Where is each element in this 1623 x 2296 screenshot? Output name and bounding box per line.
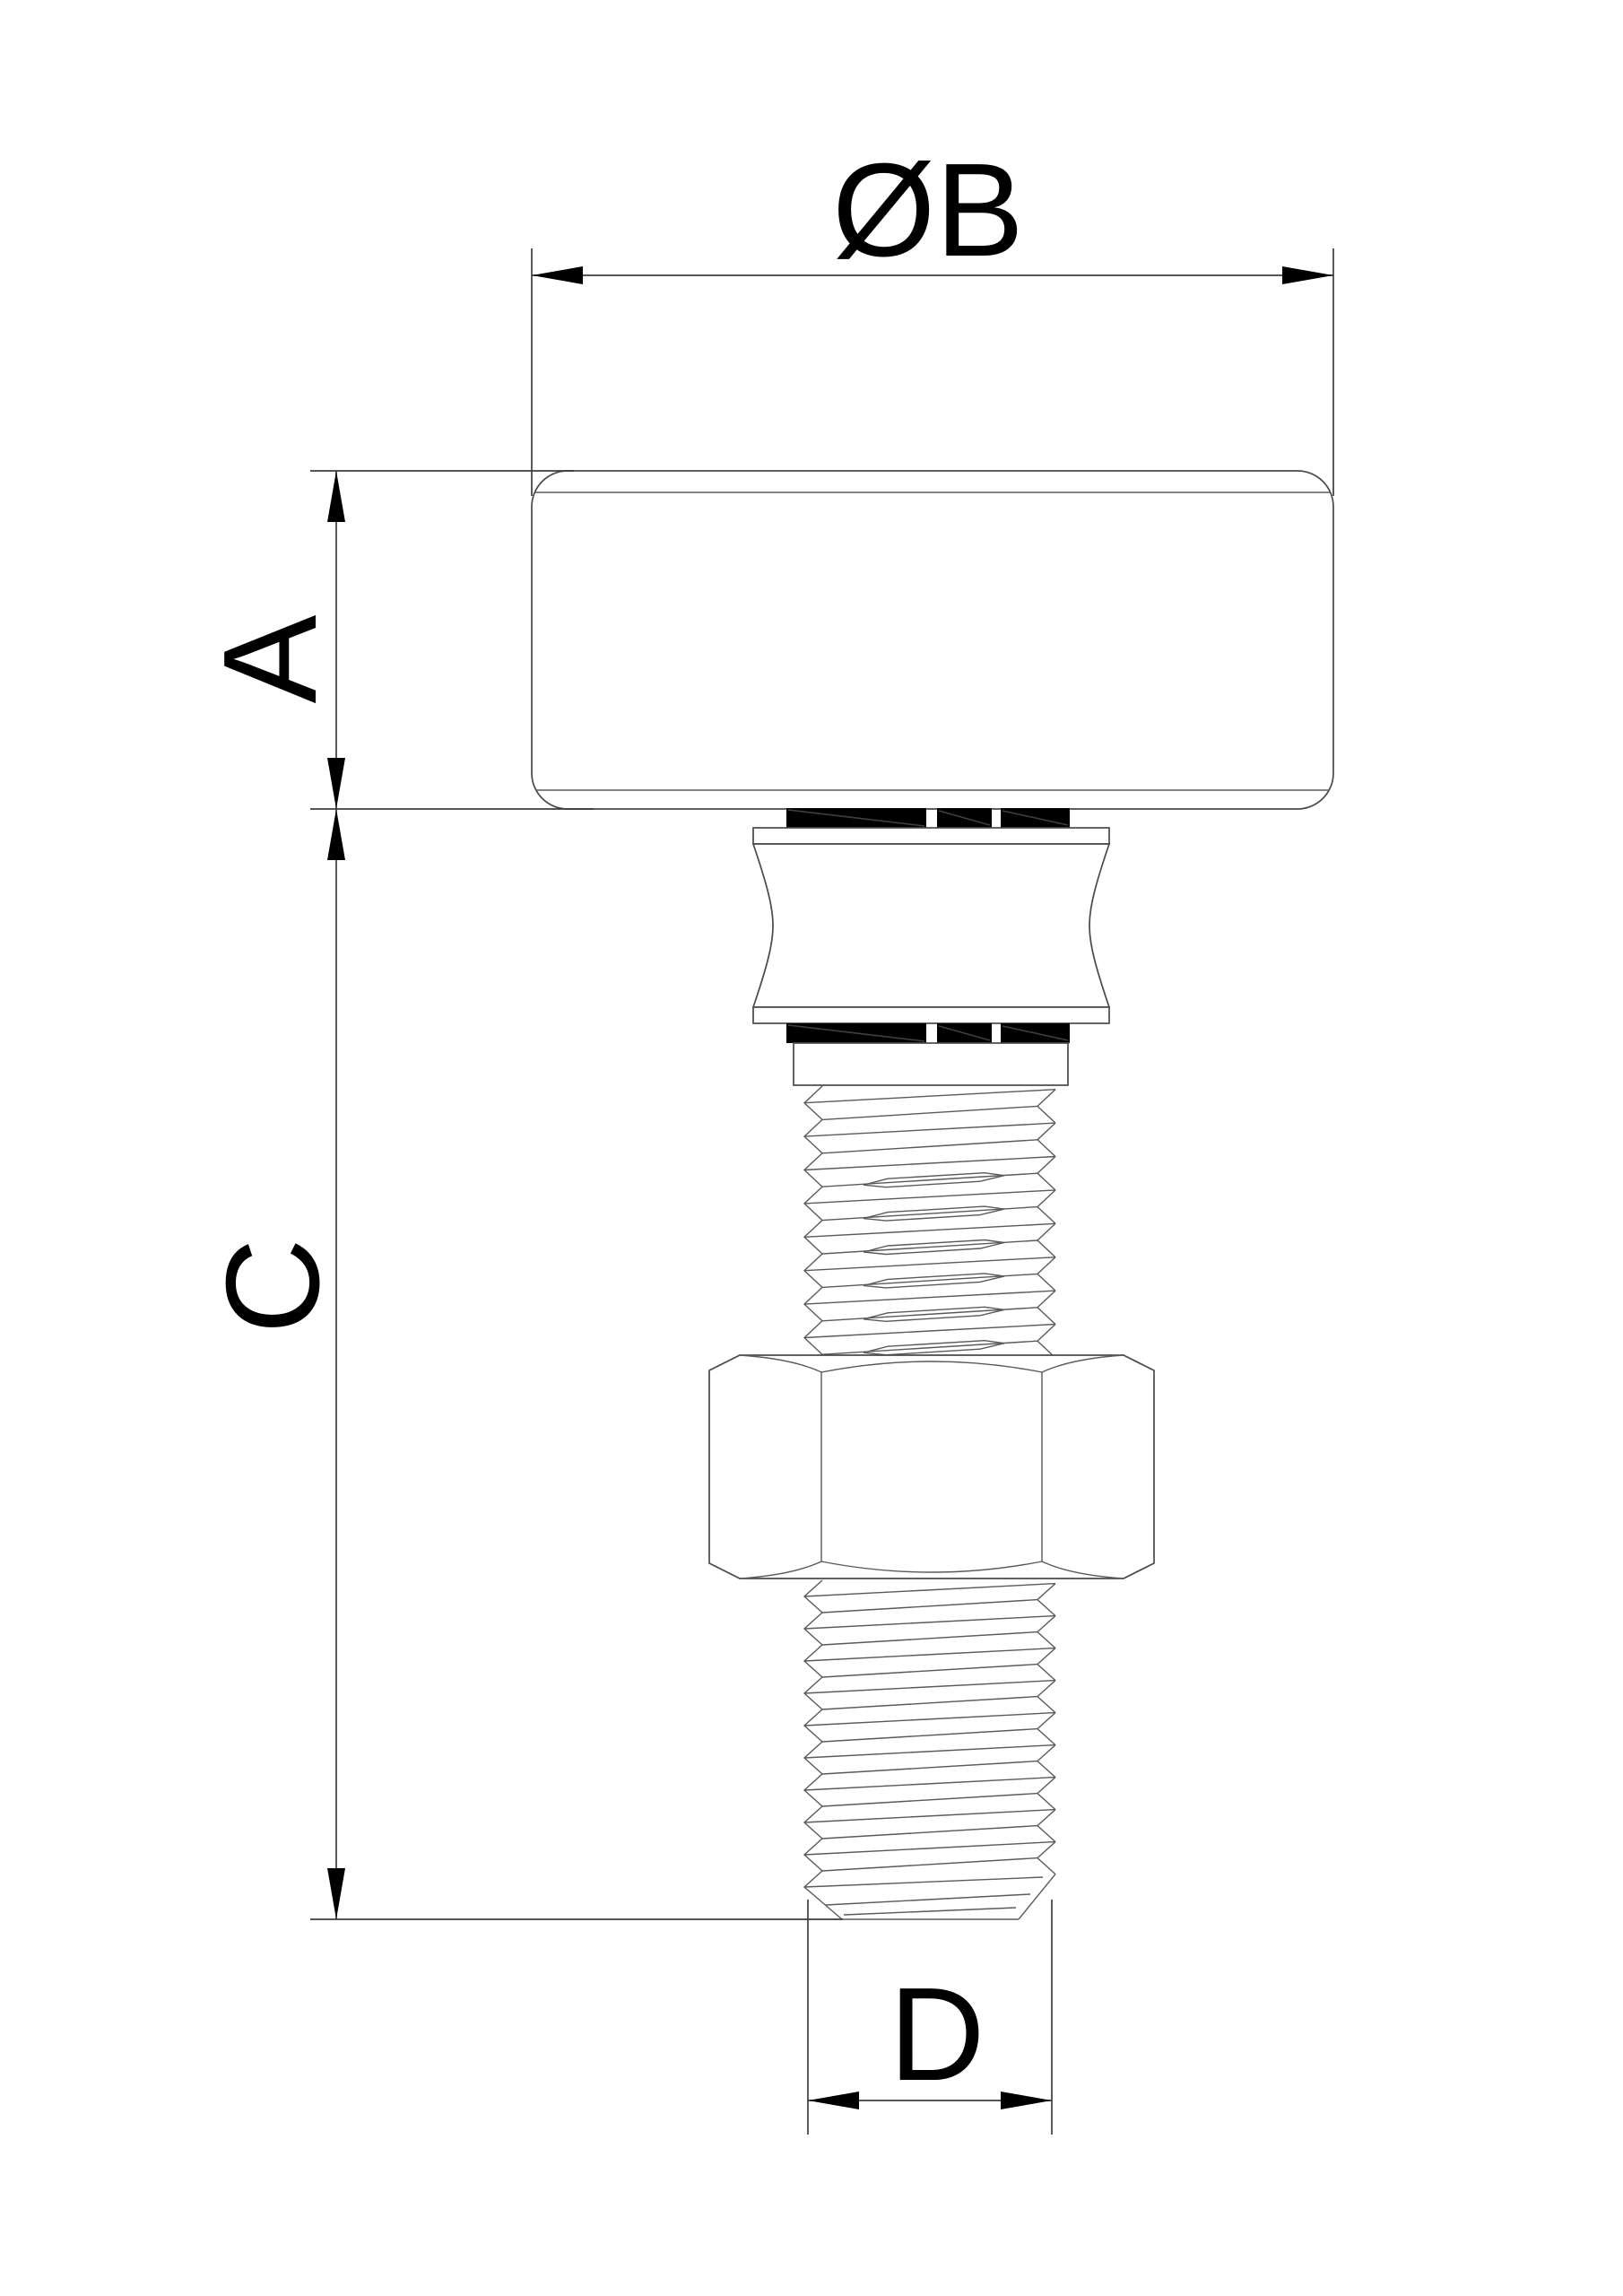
tip-thread-line — [804, 1877, 1043, 1887]
arrowhead-down — [327, 758, 345, 809]
threaded-section-upper — [804, 1086, 1055, 1358]
roller-cylinder-outline — [532, 471, 1333, 809]
hex-nut-outline — [709, 1355, 1154, 1578]
tip-thread-line — [826, 1894, 1030, 1905]
rod-tip-chamfer — [804, 1871, 1055, 1919]
arrowhead-down — [327, 1868, 345, 1919]
dim-label-thread-d: D — [890, 1961, 985, 2109]
spool-top-flange — [753, 828, 1109, 844]
dimension-thread-d: D — [808, 1900, 1052, 2135]
arrowhead-right — [1001, 2092, 1052, 2109]
spool-pulley — [753, 828, 1109, 1023]
spool-bottom-flange — [753, 1007, 1109, 1023]
dimension-diameter-b: ØB — [532, 136, 1333, 496]
dim-label-height-a: A — [196, 614, 344, 703]
arrowhead-left — [532, 266, 583, 284]
arrowhead-up — [327, 471, 345, 522]
arrowhead-up — [327, 809, 345, 860]
arrowhead-right — [1282, 266, 1333, 284]
spool-concave-body — [753, 844, 1109, 1007]
dim-label-length-c: C — [199, 1239, 347, 1335]
roller-cylinder — [532, 471, 1333, 809]
seal-band-bottom — [786, 1023, 1070, 1043]
dim-label-diameter-b: ØB — [832, 136, 1024, 284]
tip-right-taper — [1019, 1874, 1055, 1919]
shank — [794, 1043, 1068, 1085]
technical-drawing-canvas: ØB A C D — [0, 0, 1623, 2296]
tip-left-taper — [804, 1871, 842, 1919]
threaded-section-lower — [804, 1580, 1055, 1874]
arrowhead-left — [808, 2092, 859, 2109]
tip-thread-line — [844, 1908, 1016, 1915]
seal-band-top — [786, 808, 1070, 828]
roller-bolt-drawing: ØB A C D — [0, 0, 1623, 2296]
hex-nut — [709, 1355, 1154, 1578]
